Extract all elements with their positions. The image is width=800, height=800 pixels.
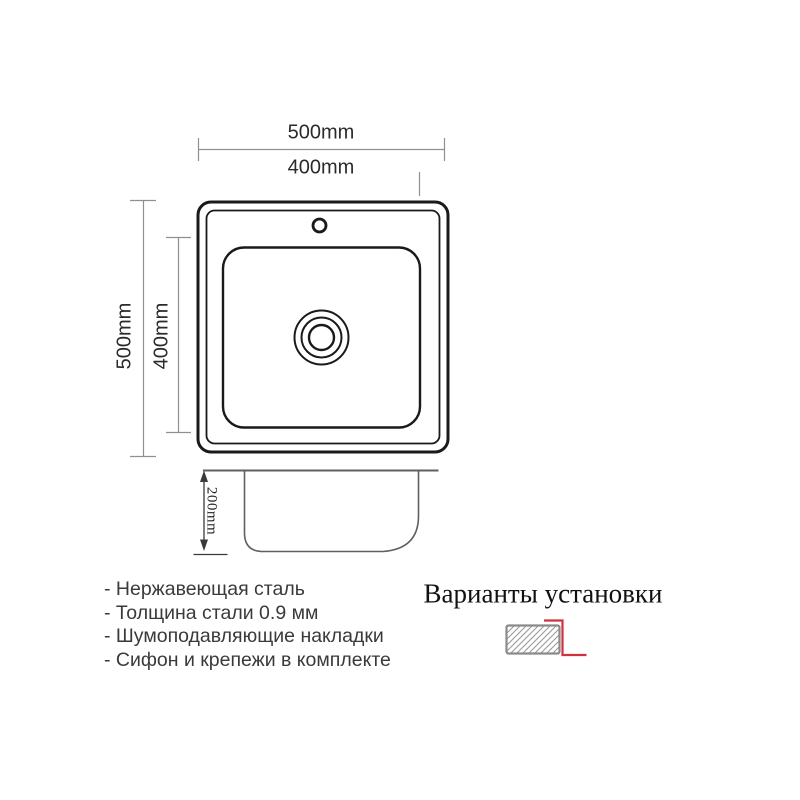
feature-included-parts: - Сифон и крепежи в комплекте: [104, 649, 391, 673]
top-inner-width-label: 400mm: [288, 157, 355, 180]
depth-label: 200mm: [203, 487, 220, 535]
left-inner-height-label: 400mm: [151, 303, 174, 370]
installation-options-title: Варианты установки: [424, 579, 663, 610]
left-outer-height-label: 500mm: [114, 303, 137, 370]
faucet-hole: [313, 219, 326, 232]
feature-material: - Нержавеющая сталь: [104, 578, 391, 602]
top-outer-width-label: 500mm: [288, 122, 355, 145]
diagram-linework: [0, 0, 800, 800]
feature-list: - Нержавеющая сталь - Толщина стали 0.9 …: [104, 578, 391, 672]
sink-top-view: [198, 202, 448, 452]
sink-side-view: [203, 471, 439, 552]
sink-spec-diagram: 500mm 400mm 500mm 400mm 200mm - Нержавею…: [0, 0, 800, 800]
overmount-installation-icon: [507, 621, 587, 656]
feature-thickness: - Толщина стали 0.9 мм: [104, 602, 391, 626]
feature-noise-pads: - Шумоподавляющие накладки: [104, 625, 391, 649]
